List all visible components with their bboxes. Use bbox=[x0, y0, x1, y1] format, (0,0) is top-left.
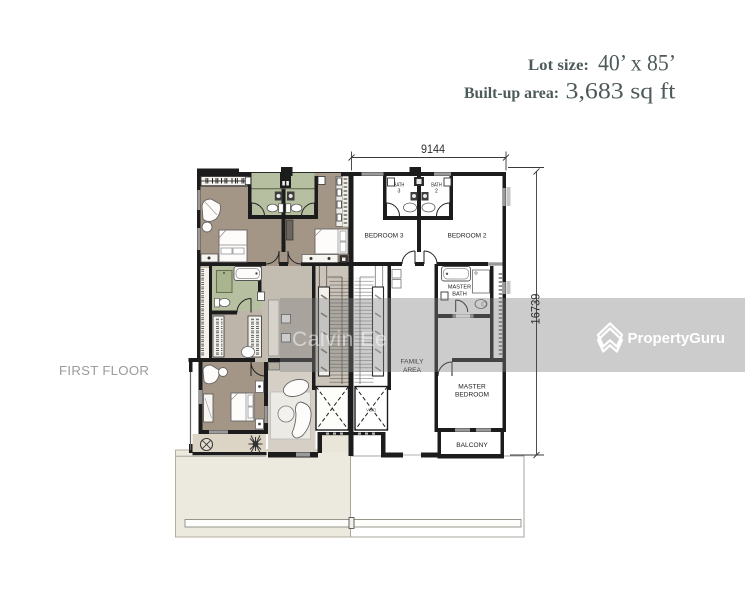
svg-text:MASTER: MASTER bbox=[448, 285, 471, 291]
svg-text:Built-up area:: Built-up area: bbox=[464, 85, 559, 102]
svg-text:FIRST FLOOR: FIRST FLOOR bbox=[59, 363, 149, 378]
svg-text:16739: 16739 bbox=[531, 294, 543, 325]
svg-text:BEDROOM 3: BEDROOM 3 bbox=[364, 233, 403, 240]
svg-text:9144: 9144 bbox=[421, 144, 446, 156]
svg-text:BALCONY: BALCONY bbox=[456, 442, 488, 449]
svg-text:PropertyGuru: PropertyGuru bbox=[628, 330, 726, 347]
svg-text:Lot size:: Lot size: bbox=[528, 57, 589, 74]
svg-text:2: 2 bbox=[435, 189, 438, 195]
svg-text:3: 3 bbox=[398, 189, 401, 195]
svg-text:Calvin Ee: Calvin Ee bbox=[292, 328, 387, 351]
svg-text:MASTER: MASTER bbox=[458, 384, 486, 391]
svg-text:BEDROOM: BEDROOM bbox=[455, 392, 489, 399]
svg-text:BEDROOM 2: BEDROOM 2 bbox=[447, 233, 486, 240]
svg-text:3,683 sq ft: 3,683 sq ft bbox=[566, 79, 677, 105]
svg-text:VOID: VOID bbox=[366, 408, 376, 413]
svg-text:40’ x 85’: 40’ x 85’ bbox=[598, 51, 676, 77]
svg-text:BATH: BATH bbox=[452, 292, 467, 298]
